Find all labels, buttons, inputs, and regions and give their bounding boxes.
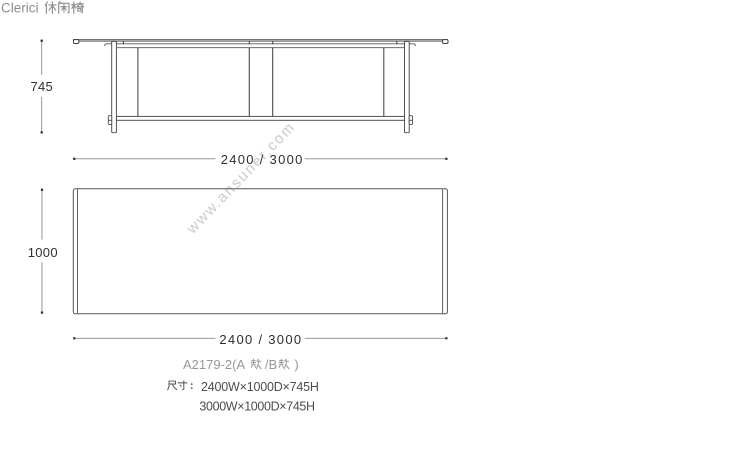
svg-text:Clerici: Clerici <box>1 1 39 16</box>
svg-text:2400 / 3000: 2400 / 3000 <box>221 152 304 167</box>
svg-text:2400 / 3000: 2400 / 3000 <box>219 332 302 347</box>
svg-text:A2179-2(A: A2179-2(A <box>183 357 245 372</box>
svg-text:1000: 1000 <box>28 245 58 260</box>
svg-text:): ) <box>294 357 298 372</box>
svg-text:3000W×1000D×745H: 3000W×1000D×745H <box>199 399 315 413</box>
svg-text:745: 745 <box>31 79 54 94</box>
svg-text:/B: /B <box>265 357 277 372</box>
svg-text:2400W×1000D×745H: 2400W×1000D×745H <box>201 380 319 394</box>
